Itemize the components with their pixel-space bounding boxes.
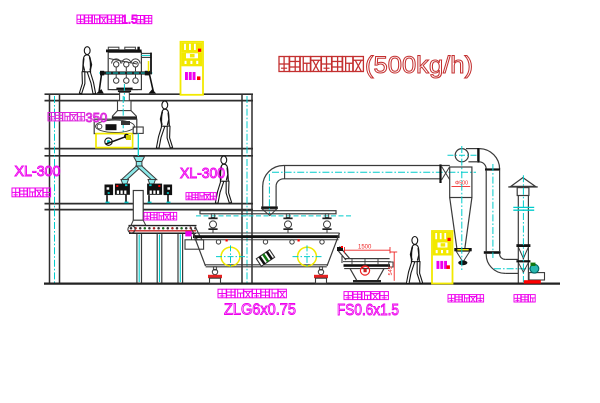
- svg-text:XL-300: XL-300: [180, 165, 225, 182]
- svg-text:350: 350: [86, 110, 108, 125]
- svg-text:ZLG6x0.75: ZLG6x0.75: [224, 302, 296, 319]
- svg-text:FS0.6x1.5: FS0.6x1.5: [337, 302, 399, 319]
- svg-text:1500: 1500: [358, 245, 372, 251]
- svg-text:XL-300: XL-300: [15, 163, 61, 180]
- svg-text:545: 545: [388, 266, 394, 275]
- svg-text:(500kg/h): (500kg/h): [365, 52, 473, 79]
- svg-text:1.5: 1.5: [122, 15, 138, 27]
